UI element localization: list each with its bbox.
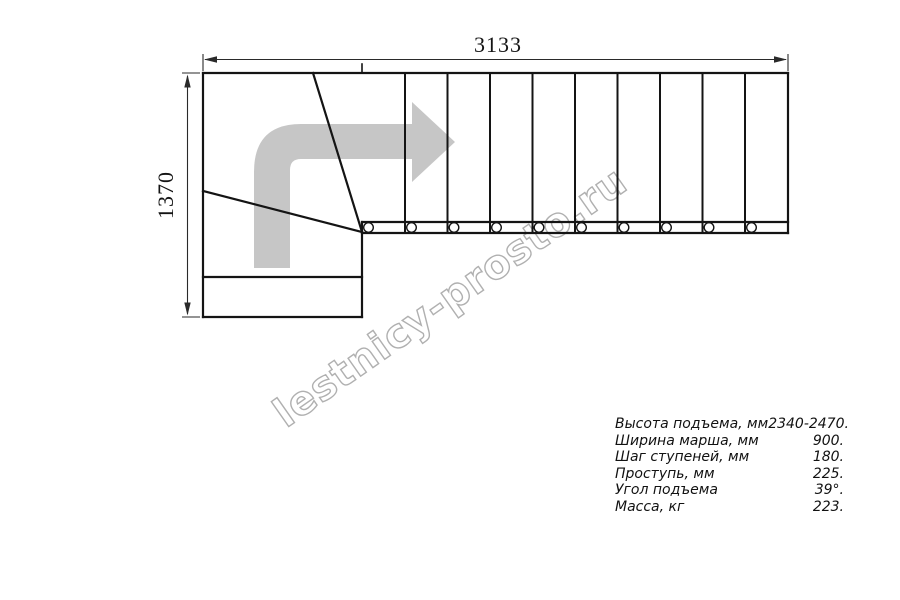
height-arrow-bottom xyxy=(184,303,190,316)
baluster xyxy=(577,223,587,233)
spec-label: Угол подъема xyxy=(615,482,718,499)
spec-value: 223. xyxy=(813,499,844,516)
spec-value: 900. xyxy=(813,433,844,450)
spec-table: Высота подъема, мм 2340-2470. Ширина мар… xyxy=(615,416,844,516)
spec-label: Ширина марша, мм xyxy=(615,433,759,450)
spec-label: Высота подъема, мм xyxy=(615,416,768,433)
spec-row: Шаг ступеней, мм 180. xyxy=(615,449,844,466)
spec-label: Шаг ступеней, мм xyxy=(615,449,749,466)
spec-row: Ширина марша, мм 900. xyxy=(615,433,844,450)
baluster xyxy=(619,223,629,233)
baluster xyxy=(407,223,417,233)
baluster xyxy=(492,223,502,233)
direction-arrow xyxy=(254,102,455,268)
watermark-text: lestnicy-prosto.ru xyxy=(265,158,635,437)
spec-value: 225. xyxy=(813,466,844,483)
baluster xyxy=(364,223,374,233)
spec-label: Проступь, мм xyxy=(615,466,715,483)
spec-value: 180. xyxy=(813,449,844,466)
spec-row: Высота подъема, мм 2340-2470. xyxy=(615,416,844,433)
height-arrow-top xyxy=(184,75,190,88)
spec-value: 39°. xyxy=(815,482,844,499)
spec-label: Масса, кг xyxy=(615,499,684,516)
spec-row: Угол подъема 39°. xyxy=(615,482,844,499)
baluster xyxy=(449,223,459,233)
baluster xyxy=(662,223,672,233)
width-arrow-left xyxy=(204,56,217,62)
baluster xyxy=(534,223,544,233)
spec-row: Масса, кг 223. xyxy=(615,499,844,516)
width-dimension-label: 3133 xyxy=(474,32,522,57)
stair-plan-page: lestnicy-prosto.ru xyxy=(0,0,900,600)
width-arrow-right xyxy=(774,56,787,62)
spec-value: 2340-2470. xyxy=(768,416,849,433)
height-dimension-label: 1370 xyxy=(153,171,178,219)
baluster xyxy=(747,223,757,233)
spec-row: Проступь, мм 225. xyxy=(615,466,844,483)
baluster xyxy=(704,223,714,233)
